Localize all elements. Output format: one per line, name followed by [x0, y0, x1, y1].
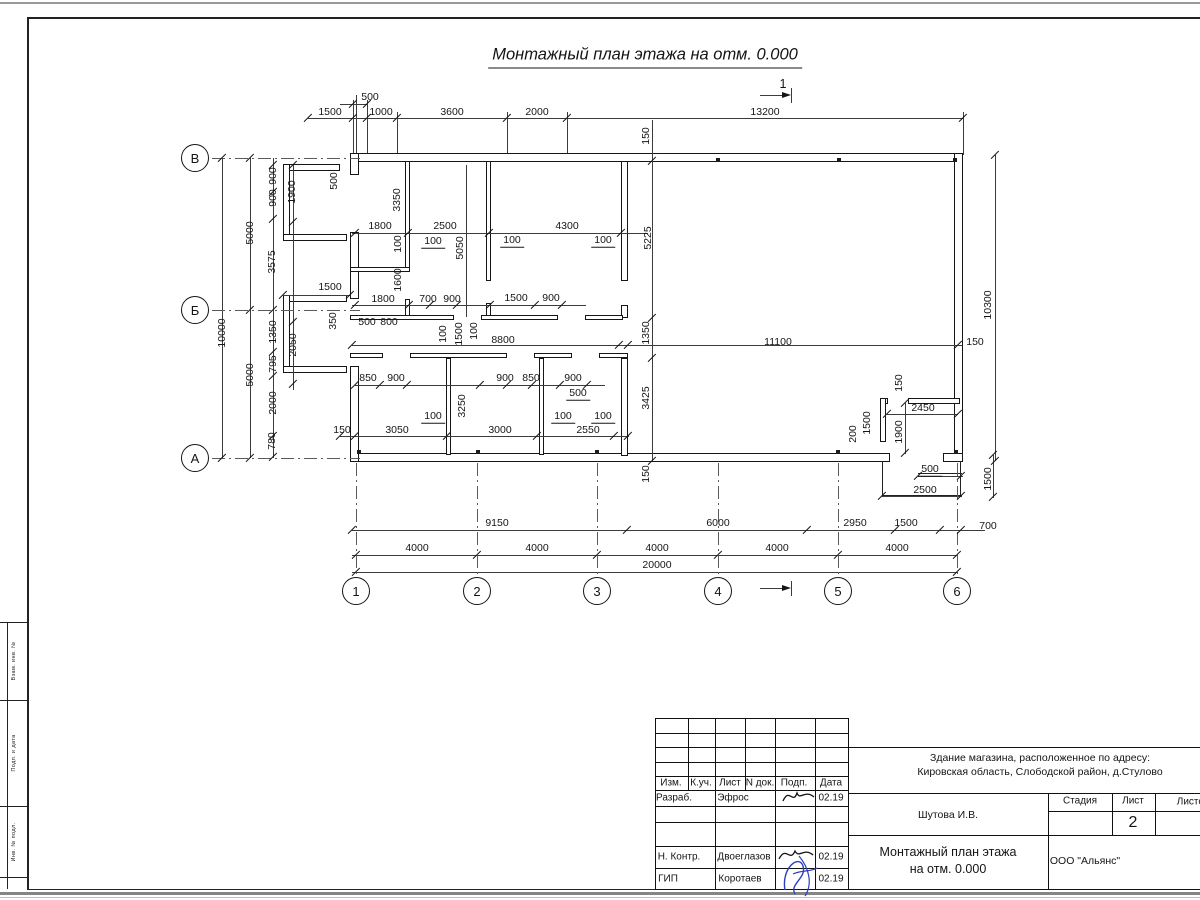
axis-bubble-col: 2 [463, 577, 491, 605]
tb-date: 02.19 [818, 792, 843, 804]
dim-label: 2500 [913, 485, 936, 496]
dim-label: 800 [380, 317, 398, 328]
tb-company: ООО "Альянс" [1050, 855, 1120, 867]
title-block-line [848, 793, 1200, 794]
dim-label: 900 [443, 294, 461, 305]
dim-label: 3600 [440, 107, 463, 118]
tb-chief: Шутова И.В. [918, 809, 978, 821]
dim-label: 5000 [245, 363, 256, 386]
anchor-square [953, 158, 957, 162]
axis-line [477, 463, 478, 578]
wall-segment [486, 161, 491, 281]
dim-label: 2550 [576, 425, 599, 436]
margin-line [0, 877, 28, 878]
section-arrow-head [782, 585, 791, 591]
anchor-square [716, 158, 720, 162]
tb-sheet-number: 2 [1129, 814, 1138, 832]
axis-label: 5 [834, 584, 841, 599]
dim-label: 4300 [555, 221, 578, 232]
dim-label: 2000 [268, 391, 279, 414]
axis-label: 6 [953, 584, 960, 599]
wall-segment [585, 315, 623, 320]
axis-line [212, 158, 360, 159]
frame-left [27, 17, 29, 890]
dim-label: 3250 [457, 394, 468, 417]
dim-label: 6000 [706, 518, 729, 529]
section-mark-label: 1 [780, 77, 787, 91]
dim-label: 8800 [491, 335, 514, 346]
tb-role: Н. Контр. [658, 851, 701, 863]
dim-label: 1500 [894, 518, 917, 529]
dim-label: 2950 [843, 518, 866, 529]
dim-label: 1500 [454, 322, 465, 345]
dimension-line [352, 530, 985, 531]
dim-label: 3425 [641, 386, 652, 409]
dim-label: 2050 [288, 333, 299, 356]
dim-label: 500 [361, 92, 379, 103]
tb-header-cell: N док. [746, 777, 775, 789]
dimension-line [340, 436, 629, 437]
dim-label: 100 [438, 325, 449, 343]
porch-line [882, 461, 883, 497]
dimension-line [905, 403, 906, 454]
wall-segment [350, 232, 359, 299]
axis-bubble-row: В [181, 144, 209, 172]
dim-label: 10300 [983, 290, 994, 319]
dim-label: 5050 [455, 236, 466, 259]
dimension-line [882, 496, 962, 497]
dim-label: 100 [591, 235, 615, 248]
tb-name: Двоеглазов [717, 851, 770, 863]
title-block-line [655, 762, 848, 763]
dim-label: 100 [500, 235, 524, 248]
axis-label: В [191, 151, 200, 166]
dim-label: 1500 [318, 282, 341, 293]
margin-stamp-label: Подп. и дата [11, 734, 17, 771]
title-block-line [715, 718, 716, 890]
tb-sheets-label: Листов [1177, 796, 1200, 808]
title-block-line [848, 835, 1200, 836]
axis-bubble-col: 5 [824, 577, 852, 605]
dim-label: 350 [328, 312, 339, 330]
tb-project-line: Здание магазина, расположенное по адресу… [930, 752, 1150, 764]
dim-label: 11100 [764, 337, 792, 348]
dim-label: 500 [329, 172, 340, 190]
axis-label: А [191, 451, 200, 466]
dim-label: 1350 [268, 320, 279, 343]
anchor-square [476, 450, 480, 454]
dim-label: 1350 [641, 321, 652, 344]
tb-header-cell: К.уч. [690, 777, 712, 789]
frame-top [27, 17, 1200, 19]
axis-line [597, 463, 598, 578]
section-arrow-bar [791, 581, 792, 596]
dim-label: 3350 [392, 188, 403, 211]
dim-label: 3575 [267, 250, 278, 273]
margin-line [7, 622, 8, 889]
tb-project-line: Кировская область, Слободской район, д.С… [917, 766, 1162, 778]
dim-label: 100 [421, 411, 445, 424]
drawing-title: Монтажный план этажа на отм. 0.000 [488, 46, 802, 69]
title-block-line [655, 718, 848, 719]
dim-label: 1500 [504, 293, 527, 304]
dimension-line [352, 572, 957, 573]
margin-stamp-label: Инв. № подл. [11, 822, 17, 861]
title-block-line [655, 846, 848, 847]
axis-line [212, 458, 360, 459]
tb-stage-label: Стадия [1063, 795, 1097, 807]
margin-stamp-label: Взам. инв. № [11, 642, 17, 681]
axis-line [356, 463, 357, 578]
dim-label: 1900 [894, 420, 905, 443]
dim-label: 1800 [368, 221, 391, 232]
dim-label: 700 [419, 294, 437, 305]
dim-label: 850 [359, 373, 377, 384]
dim-label: 20000 [642, 560, 671, 571]
dim-label: 795 [268, 355, 279, 373]
dim-label: 150 [333, 425, 351, 436]
dim-label: 900 [496, 373, 514, 384]
porch-line [960, 461, 961, 497]
dim-label: 4000 [885, 543, 908, 554]
section-arrow-bar [791, 88, 792, 103]
wall-segment [350, 453, 890, 462]
dimension-line [308, 118, 963, 119]
anchor-square [595, 450, 599, 454]
wall-segment [446, 358, 451, 455]
dim-label: 13200 [750, 107, 779, 118]
dim-label: 4000 [645, 543, 668, 554]
axis-bubble-row: Б [181, 296, 209, 324]
title-block-line [655, 718, 656, 890]
dim-label: 3000 [488, 425, 511, 436]
wall-segment [599, 353, 628, 358]
anchor-square [836, 450, 840, 454]
margin-line [0, 806, 28, 807]
dimension-line [466, 165, 467, 317]
dim-label: 500 [358, 317, 376, 328]
dim-label: 780 [267, 432, 278, 450]
dimension-line [652, 120, 653, 161]
dim-label: 900 [268, 189, 279, 207]
dim-label: 5000 [245, 221, 256, 244]
dim-label: 100 [551, 411, 575, 424]
dimension-line [352, 555, 957, 556]
dim-label: 500 [566, 388, 590, 401]
dim-label: 150 [641, 127, 652, 145]
axis-label: Б [191, 303, 200, 318]
dim-label: 900 [268, 167, 279, 185]
wall-segment [350, 153, 359, 175]
anchor-square [357, 450, 361, 454]
dim-label: 2500 [433, 221, 456, 232]
dimension-line [652, 161, 653, 461]
dim-label: 150 [894, 374, 905, 392]
wall-segment [405, 161, 410, 271]
dimension-line [352, 345, 962, 346]
wall-segment [621, 358, 628, 456]
title-block-line [848, 718, 849, 890]
title-block-line [688, 718, 689, 790]
title-block-line [1048, 793, 1049, 890]
dim-label: 2000 [525, 107, 548, 118]
title-block-line [1112, 793, 1113, 835]
dimension-line [353, 100, 354, 153]
dim-label: 1500 [983, 467, 994, 490]
tb-header-cell: Дата [820, 777, 842, 789]
dim-label: 1900 [287, 180, 298, 203]
dim-label: 1000 [369, 107, 392, 118]
tb-header-cell: Лист [719, 777, 741, 789]
tb-name: Эфрос [717, 792, 749, 804]
dimension-line [352, 305, 586, 306]
axis-bubble-col: 1 [342, 577, 370, 605]
dim-label: 100 [421, 236, 445, 249]
dim-label: 4000 [525, 543, 548, 554]
wall-segment [410, 353, 507, 358]
drawing-sheet: Взам. инв. № Подп. и дата Инв. № подл. М… [0, 0, 1200, 900]
title-block-line [1048, 811, 1200, 812]
anchor-square [837, 158, 841, 162]
paper-edge-bottom2 [0, 897, 1200, 898]
signature-blue [779, 850, 823, 898]
title-block-line [655, 806, 848, 807]
section-arrow [760, 588, 784, 589]
dim-label: 150 [641, 465, 652, 483]
dimension-line [356, 95, 357, 153]
signature [781, 787, 817, 805]
title-block-line [655, 790, 848, 791]
tb-sheet-label: Лист [1122, 795, 1144, 807]
anchor-square [954, 450, 958, 454]
margin-line [0, 622, 28, 623]
wall-segment [621, 161, 628, 281]
dim-label: 500 [918, 464, 942, 477]
axis-label: 1 [352, 584, 359, 599]
tb-doc-title: Монтажный план этажа [880, 845, 1017, 859]
axis-line [838, 463, 839, 578]
axis-bubble-col: 4 [704, 577, 732, 605]
paper-edge-top [0, 2, 1200, 4]
axis-bubble-col: 6 [943, 577, 971, 605]
dim-label: 10000 [217, 318, 228, 347]
tb-doc-title: на отм. 0.000 [910, 862, 987, 876]
dim-label: 100 [591, 411, 615, 424]
axis-label: 3 [593, 584, 600, 599]
axis-bubble-row: А [181, 444, 209, 472]
axis-bubble-col: 3 [583, 577, 611, 605]
tb-role: Разраб. [656, 792, 692, 804]
dimension-line [887, 414, 958, 415]
dim-label: 900 [387, 373, 405, 384]
dim-label: 900 [564, 373, 582, 384]
axis-label: 4 [714, 584, 721, 599]
dim-label: 150 [966, 337, 984, 348]
axis-label: 2 [473, 584, 480, 599]
dim-label: 1500 [318, 107, 341, 118]
dimension-line [367, 100, 368, 153]
dim-label: 1500 [862, 411, 873, 434]
dim-label: 2450 [911, 403, 934, 414]
margin-line [0, 700, 28, 701]
wall-segment [350, 353, 383, 358]
wall-segment [481, 315, 558, 320]
dimension-line [995, 155, 996, 461]
dim-label: 1600 [393, 268, 404, 291]
dimension-line [222, 158, 223, 458]
title-block-line [1155, 793, 1156, 835]
dim-label: 700 [979, 521, 997, 532]
dim-label: 5225 [643, 226, 654, 249]
dim-label: 4000 [765, 543, 788, 554]
title-block-line [655, 822, 848, 823]
paper-edge-bottom [0, 892, 1200, 895]
title-block-line [655, 747, 848, 748]
dim-label: 100 [469, 322, 480, 340]
dim-label: 850 [522, 373, 540, 384]
dim-label: 9150 [485, 518, 508, 529]
dim-label: 200 [848, 425, 859, 443]
title-block-line [655, 889, 1200, 890]
wall-segment [880, 398, 886, 442]
tb-header-cell: Изм. [660, 777, 681, 789]
dim-label: 100 [393, 235, 404, 253]
dim-label: 4000 [405, 543, 428, 554]
section-arrow-head [782, 92, 791, 98]
dim-label: 900 [542, 293, 560, 304]
dim-label: 1800 [371, 294, 394, 305]
tb-role: ГИП [658, 873, 678, 885]
section-arrow [760, 95, 784, 96]
title-block-line [848, 747, 1200, 748]
title-block-line [655, 733, 848, 734]
tb-name: Коротаев [718, 873, 761, 885]
dim-label: 3050 [385, 425, 408, 436]
wall-segment [350, 153, 963, 162]
